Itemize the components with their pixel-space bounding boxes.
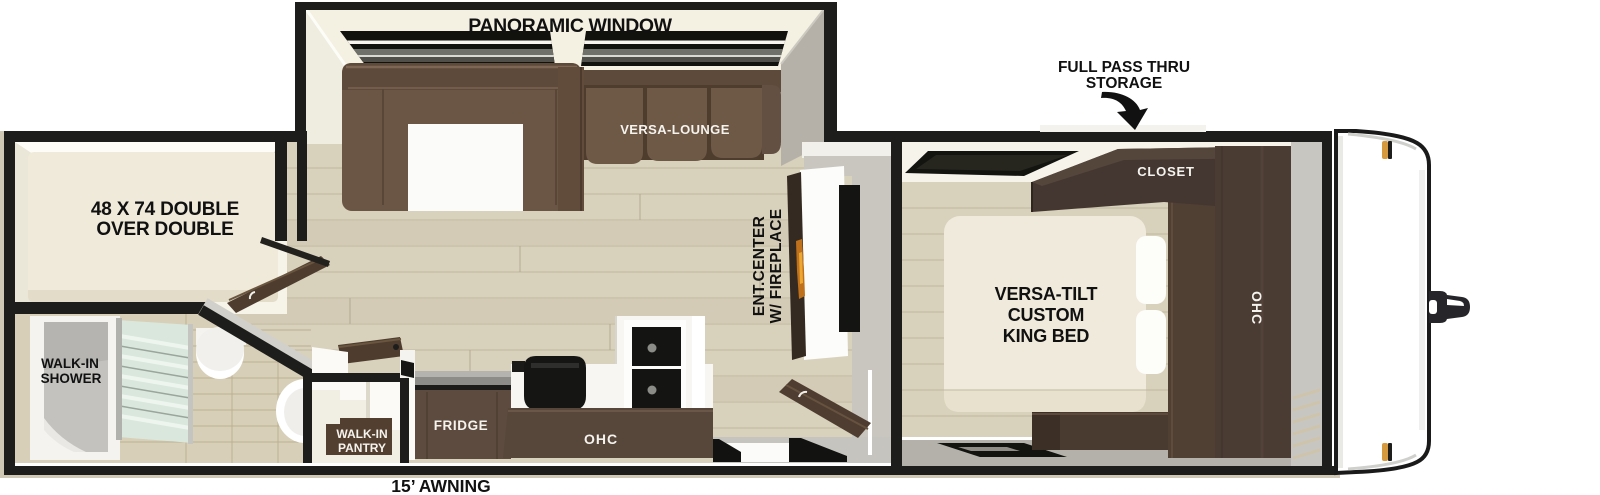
svg-text:KING BED: KING BED bbox=[1003, 326, 1090, 346]
svg-text:W/ FIREPLACE: W/ FIREPLACE bbox=[768, 209, 785, 324]
svg-text:FRIDGE: FRIDGE bbox=[434, 418, 489, 433]
svg-text:CUSTOM: CUSTOM bbox=[1008, 305, 1084, 325]
svg-text:VERSA-LOUNGE: VERSA-LOUNGE bbox=[620, 122, 730, 137]
svg-text:PANORAMIC WINDOW: PANORAMIC WINDOW bbox=[468, 15, 672, 37]
svg-text:48 X 74 DOUBLE: 48 X 74 DOUBLE bbox=[91, 199, 239, 220]
svg-text:STORAGE: STORAGE bbox=[1086, 75, 1162, 92]
svg-text:15’ AWNING: 15’ AWNING bbox=[391, 476, 491, 495]
svg-text:WALK-IN: WALK-IN bbox=[41, 356, 99, 371]
svg-text:PANTRY: PANTRY bbox=[338, 441, 386, 455]
svg-text:CLOSET: CLOSET bbox=[1137, 164, 1195, 179]
svg-text:ENT.CENTER: ENT.CENTER bbox=[751, 216, 768, 316]
svg-text:VERSA-TILT: VERSA-TILT bbox=[995, 284, 1098, 304]
svg-text:FULL PASS THRU: FULL PASS THRU bbox=[1058, 59, 1190, 76]
svg-text:OVER DOUBLE: OVER DOUBLE bbox=[96, 219, 233, 240]
svg-text:OHC: OHC bbox=[1249, 291, 1265, 325]
svg-text:WALK-IN: WALK-IN bbox=[336, 427, 387, 441]
svg-text:OHC: OHC bbox=[584, 431, 618, 447]
svg-text:SHOWER: SHOWER bbox=[41, 371, 102, 386]
